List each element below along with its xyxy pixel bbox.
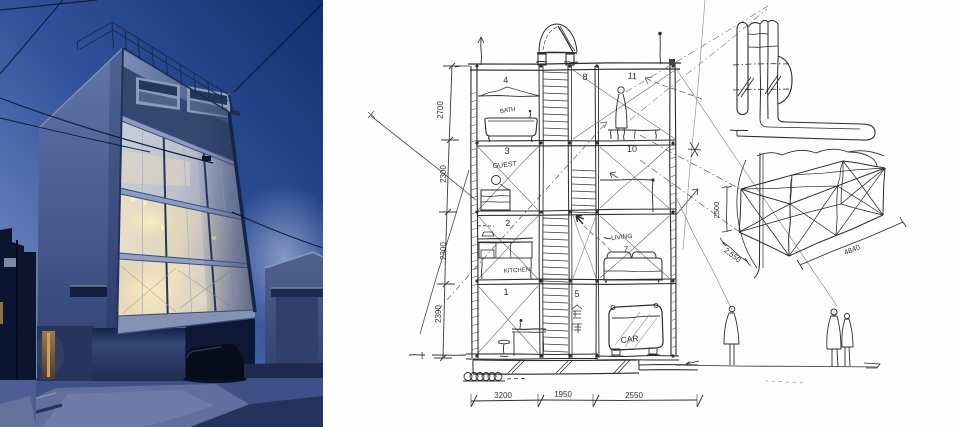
svg-text:3: 3 [504,146,509,156]
svg-text:1950: 1950 [554,390,572,399]
svg-text:2700: 2700 [436,101,445,119]
svg-text:2300: 2300 [439,242,448,260]
svg-text:10: 10 [627,144,637,154]
svg-text:7: 7 [624,245,629,254]
svg-text:3200: 3200 [494,391,512,400]
svg-text:1: 1 [503,287,508,297]
svg-text:CAR: CAR [620,333,639,345]
svg-text:2: 2 [505,218,511,228]
svg-text:4: 4 [503,75,509,85]
svg-text:2390: 2390 [434,305,443,323]
svg-text:8: 8 [582,72,587,82]
svg-text:2550: 2550 [625,391,643,400]
svg-text:11: 11 [627,71,637,82]
svg-text:2500: 2500 [712,202,721,219]
svg-text:2300: 2300 [439,165,448,183]
svg-text:5: 5 [574,289,579,299]
